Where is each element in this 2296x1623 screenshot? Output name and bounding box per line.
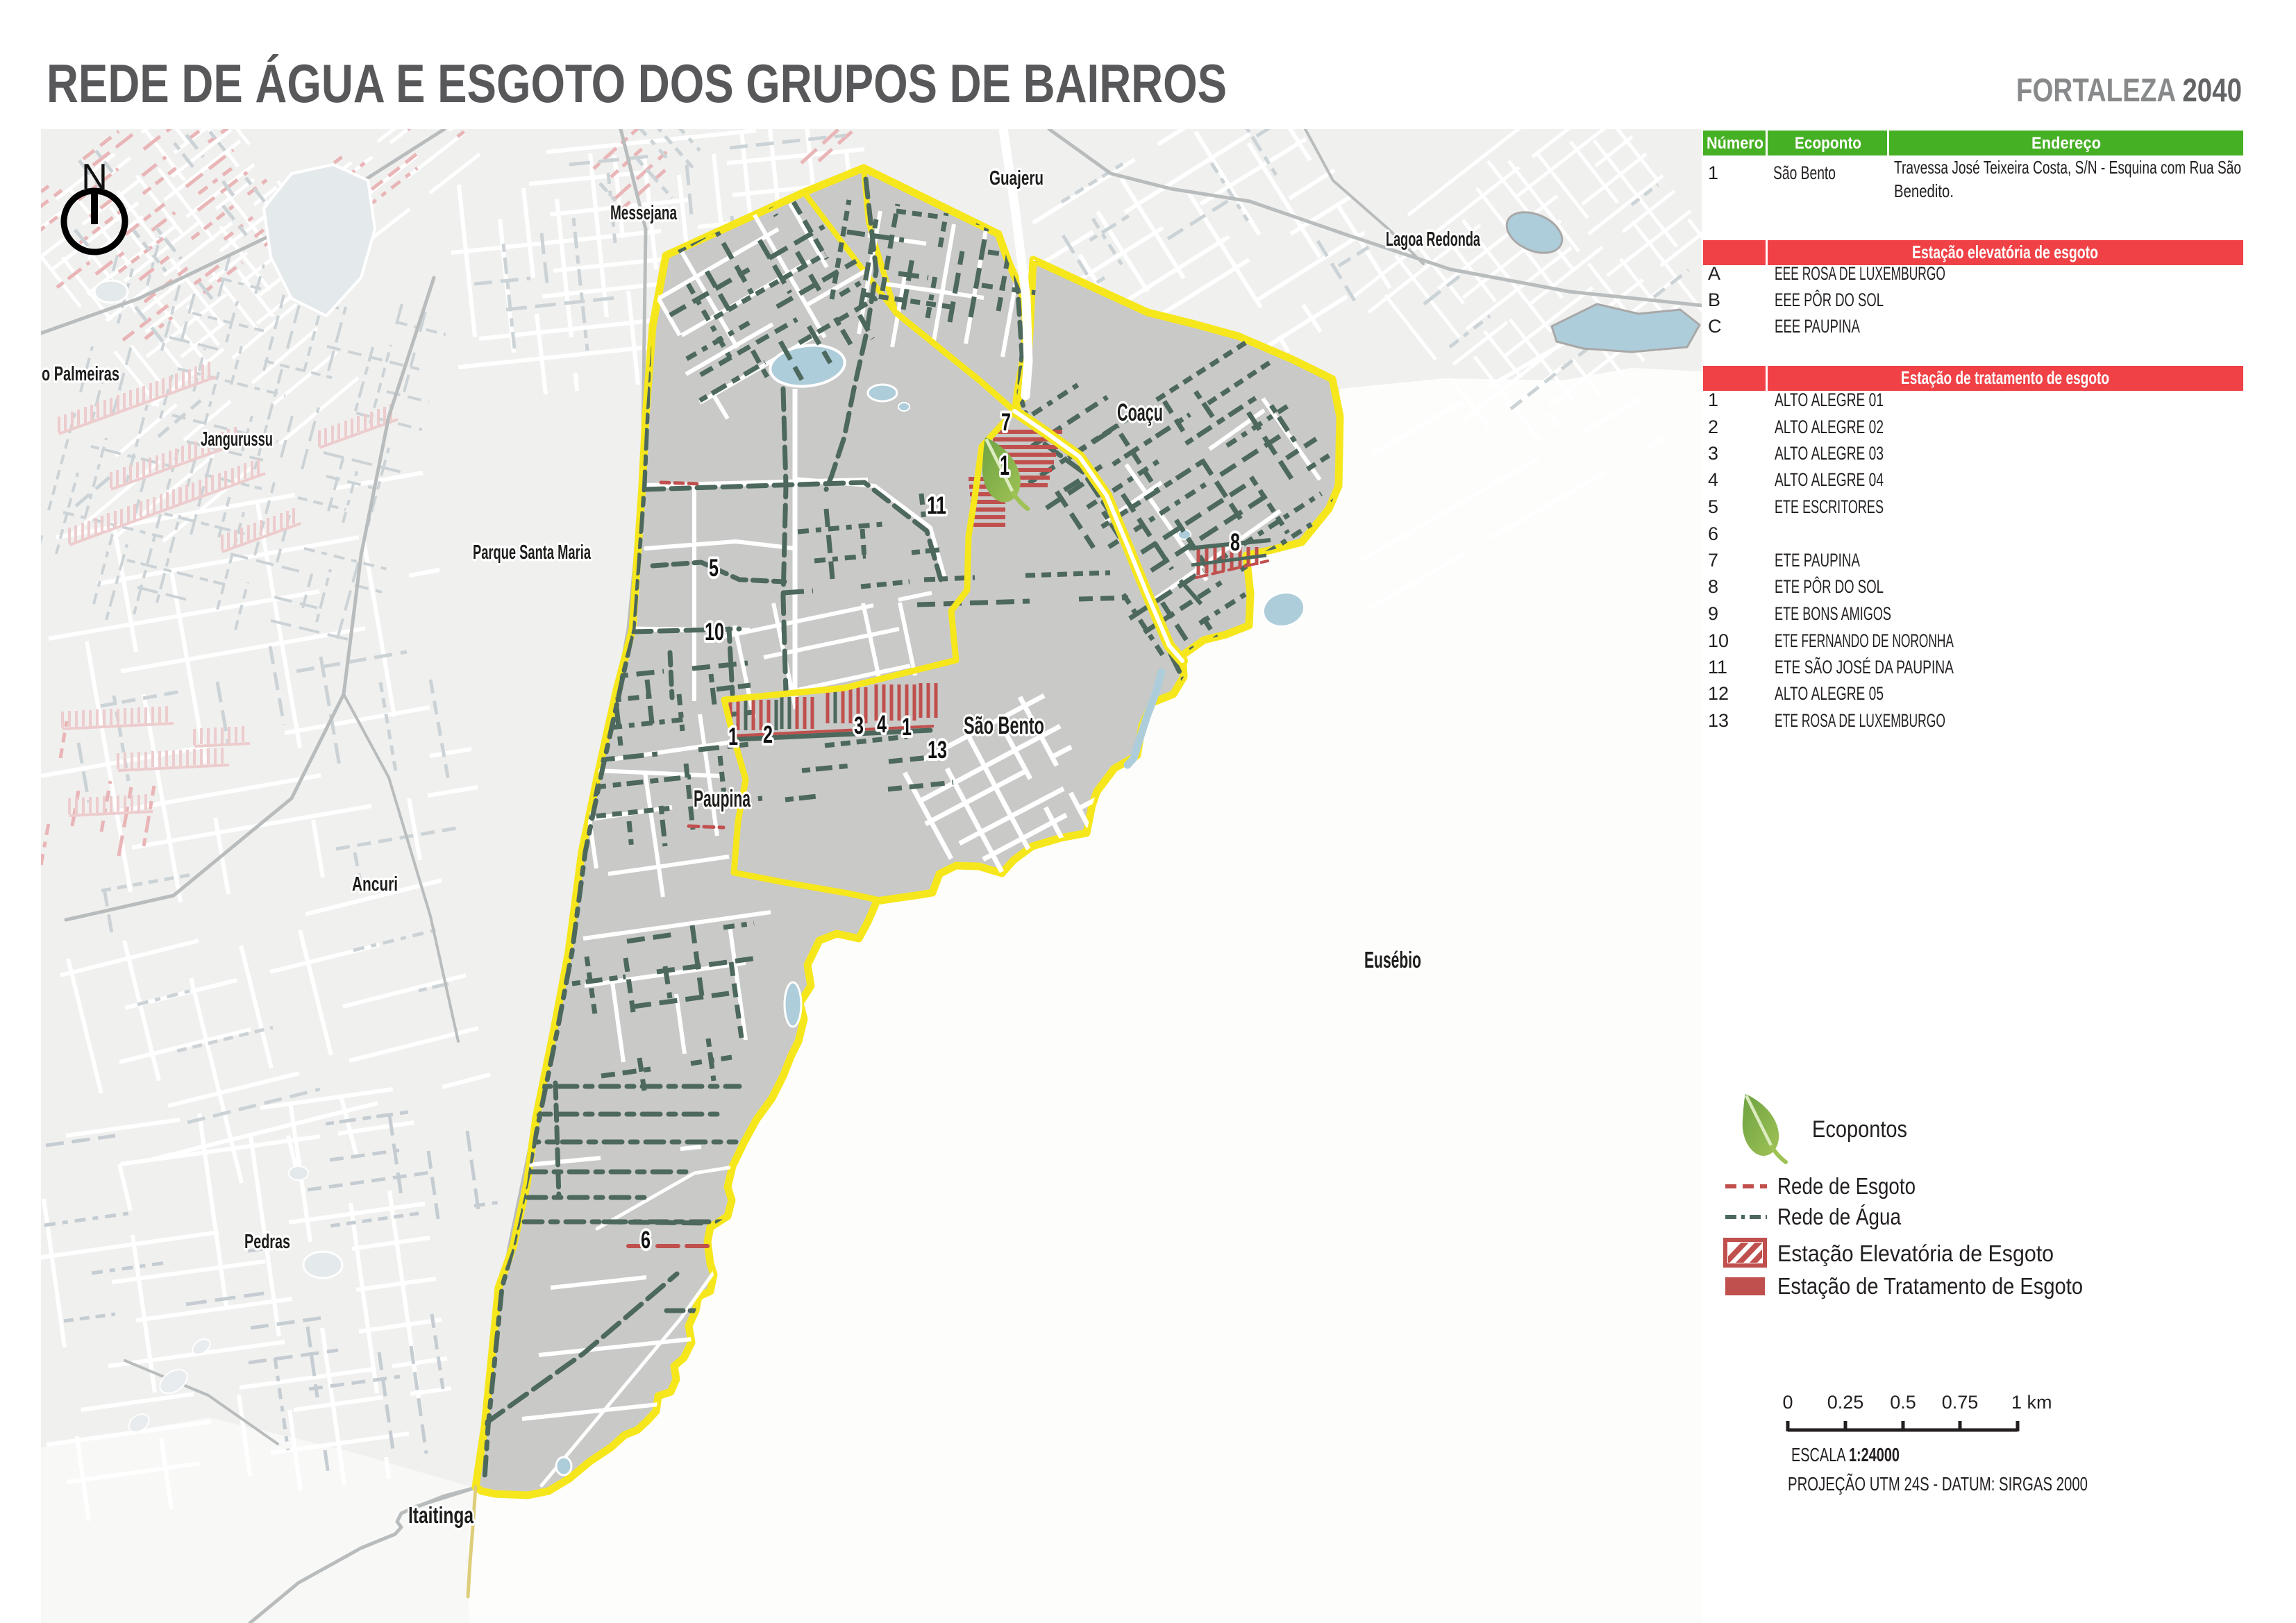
svg-text:3: 3	[1708, 443, 1718, 464]
svg-text:Número: Número	[1707, 134, 1763, 153]
svg-text:8: 8	[1230, 529, 1240, 556]
svg-text:EEE PÔR DO SOL: EEE PÔR DO SOL	[1775, 289, 1884, 310]
svg-text:ALTO ALEGRE 02: ALTO ALEGRE 02	[1775, 417, 1884, 437]
svg-text:8: 8	[1708, 576, 1718, 597]
svg-text:0: 0	[1782, 1392, 1793, 1413]
svg-text:13: 13	[928, 737, 947, 764]
svg-text:ETE FERNANDO DE NORONHA: ETE FERNANDO DE NORONHA	[1775, 630, 1954, 651]
svg-text:Rede de Água: Rede de Água	[1777, 1204, 1902, 1229]
svg-text:1: 1	[728, 723, 738, 750]
svg-text:São Bento: São Bento	[964, 712, 1044, 739]
svg-text:1 km: 1 km	[2011, 1392, 2052, 1413]
svg-text:Paupina: Paupina	[694, 786, 751, 812]
svg-text:4: 4	[1708, 469, 1718, 490]
svg-text:ETE PAUPINA: ETE PAUPINA	[1775, 550, 1860, 571]
svg-text:Rede de Esgoto: Rede de Esgoto	[1777, 1173, 1916, 1199]
svg-text:1: 1	[1708, 389, 1718, 410]
svg-text:EEE ROSA DE LUXEMBURGO: EEE ROSA DE LUXEMBURGO	[1775, 263, 1945, 284]
svg-text:ETE ESCRITORES: ETE ESCRITORES	[1775, 496, 1884, 517]
svg-text:REDE DE ÁGUA E ESGOTO DOS GRUP: REDE DE ÁGUA E ESGOTO DOS GRUPOS DE BAIR…	[47, 53, 1227, 114]
svg-text:12: 12	[1708, 683, 1729, 704]
svg-text:13: 13	[1708, 710, 1729, 731]
svg-text:Itaitinga: Itaitinga	[408, 1502, 474, 1528]
svg-text:C: C	[1708, 316, 1722, 337]
svg-text:5: 5	[1708, 496, 1718, 517]
svg-text:Ecoponto: Ecoponto	[1795, 134, 1861, 153]
svg-text:7: 7	[1001, 409, 1011, 436]
svg-text:Lagoa Redonda: Lagoa Redonda	[1386, 228, 1481, 251]
svg-text:ETE PÔR DO SOL: ETE PÔR DO SOL	[1775, 575, 1884, 597]
svg-text:4: 4	[877, 711, 887, 738]
svg-text:Pedras: Pedras	[244, 1231, 290, 1253]
svg-text:Parque Santa Maria: Parque Santa Maria	[473, 541, 592, 564]
svg-text:São Bento: São Bento	[1773, 162, 1836, 183]
svg-text:2: 2	[763, 721, 773, 748]
svg-text:ALTO ALEGRE 03: ALTO ALEGRE 03	[1775, 443, 1884, 464]
svg-text:ETE ROSA DE LUXEMBURGO: ETE ROSA DE LUXEMBURGO	[1775, 710, 1945, 731]
svg-text:3: 3	[854, 712, 864, 739]
svg-text:EEE PAUPINA: EEE PAUPINA	[1775, 316, 1860, 337]
svg-text:Messejana: Messejana	[610, 202, 678, 224]
svg-text:Jangurussu: Jangurussu	[201, 428, 273, 451]
svg-text:0.25: 0.25	[1827, 1392, 1864, 1413]
svg-text:11: 11	[1708, 657, 1727, 678]
svg-text:2: 2	[1708, 417, 1718, 437]
svg-text:5: 5	[709, 555, 719, 582]
svg-text:0.5: 0.5	[1890, 1392, 1916, 1413]
svg-text:Guajeru: Guajeru	[989, 167, 1044, 190]
svg-text:9: 9	[1708, 603, 1718, 624]
svg-text:ALTO ALEGRE 01: ALTO ALEGRE 01	[1775, 389, 1884, 410]
svg-text:Endereço: Endereço	[2031, 134, 2101, 153]
svg-text:ETE SÃO JOSÉ DA PAUPINA: ETE SÃO JOSÉ DA PAUPINA	[1775, 656, 1954, 678]
svg-text:10: 10	[1708, 630, 1729, 651]
svg-text:6: 6	[641, 1227, 651, 1254]
svg-text:o Palmeiras: o Palmeiras	[42, 363, 119, 385]
svg-text:ALTO ALEGRE 04: ALTO ALEGRE 04	[1775, 469, 1884, 490]
svg-text:A: A	[1708, 263, 1720, 284]
svg-text:FORTALEZA 2040: FORTALEZA 2040	[2016, 72, 2242, 108]
svg-text:Coaçu: Coaçu	[1117, 399, 1163, 426]
svg-text:Estação Elevatória de Esgoto: Estação Elevatória de Esgoto	[1777, 1241, 2054, 1266]
svg-text:Ancuri: Ancuri	[352, 873, 398, 895]
svg-text:B: B	[1708, 289, 1720, 310]
svg-text:1: 1	[1000, 451, 1009, 481]
svg-text:Eusébio: Eusébio	[1364, 947, 1421, 973]
svg-text:Travessa José Teixeira Costa,: Travessa José Teixeira Costa, S/N - Esqu…	[1894, 157, 2241, 178]
svg-text:ALTO ALEGRE 05: ALTO ALEGRE 05	[1775, 683, 1884, 704]
svg-text:6: 6	[1708, 523, 1718, 544]
svg-text:ETE BONS AMIGOS: ETE BONS AMIGOS	[1775, 603, 1891, 624]
svg-text:Estação elevatória de esgoto: Estação elevatória de esgoto	[1912, 242, 2098, 262]
svg-text:Estação de Tratamento de Esgot: Estação de Tratamento de Esgoto	[1777, 1273, 2083, 1299]
svg-text:ESCALA 1:24000: ESCALA 1:24000	[1791, 1444, 1900, 1465]
svg-text:Benedito.: Benedito.	[1894, 180, 1954, 201]
svg-text:PROJEÇÃO UTM 24S - DATUM: SIRG: PROJEÇÃO UTM 24S - DATUM: SIRGAS 2000	[1788, 1473, 2088, 1495]
svg-text:1: 1	[1708, 162, 1718, 183]
svg-text:11: 11	[927, 492, 946, 519]
svg-text:10: 10	[705, 619, 724, 646]
svg-text:1: 1	[902, 714, 912, 741]
svg-text:Estação de tratamento de esgot: Estação de tratamento de esgoto	[1901, 367, 2109, 388]
svg-text:7: 7	[1708, 550, 1718, 571]
svg-text:0.75: 0.75	[1942, 1392, 1979, 1413]
svg-text:Ecopontos: Ecopontos	[1812, 1116, 1907, 1143]
